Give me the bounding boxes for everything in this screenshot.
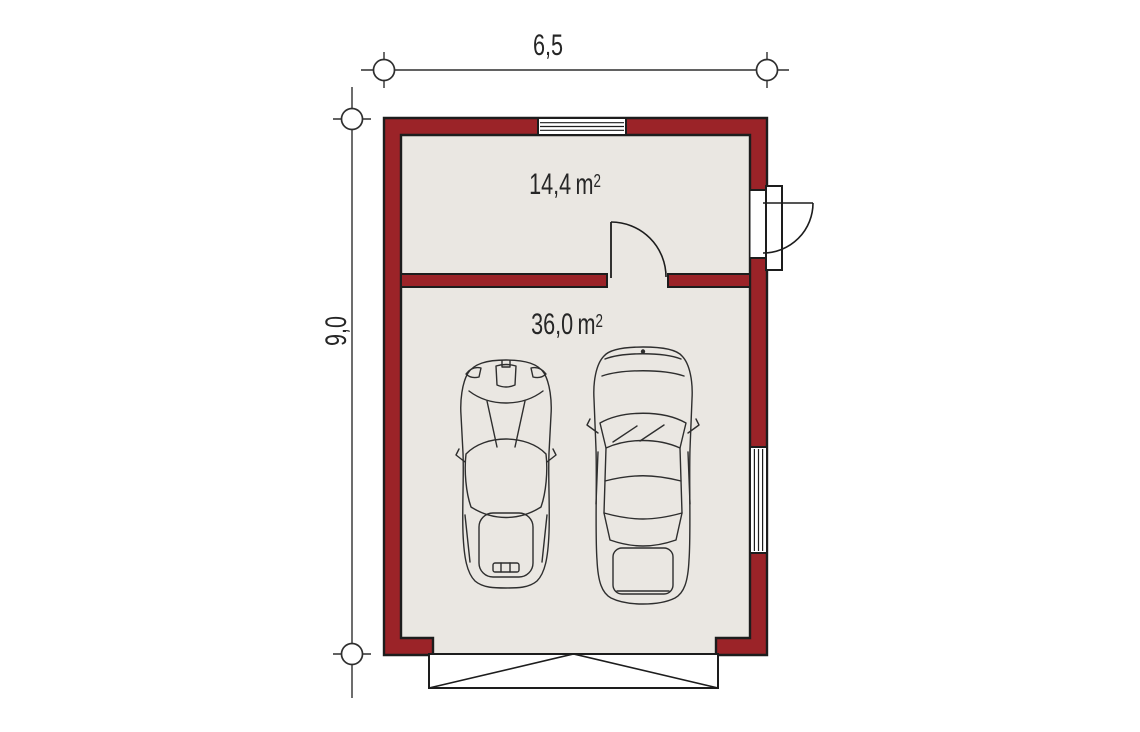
partition-wall-right — [668, 274, 750, 287]
floor-area — [399, 133, 752, 655]
dimension-height-label: 9,0 — [322, 310, 352, 352]
partition-wall-left — [401, 274, 607, 287]
dimension-line-width — [361, 52, 789, 88]
floor-plan-page: 6,5 9,0 14,4m2 36,0m2 — [0, 0, 1140, 732]
floor-plan-drawing — [0, 0, 1140, 732]
window-top-icon — [538, 118, 626, 135]
dimension-circle-marker-icon — [342, 109, 363, 130]
dimension-line-height — [333, 87, 371, 698]
exterior-door-swing-icon — [750, 186, 813, 270]
room-area-label-utility: 14,4m2 — [515, 170, 615, 200]
garage-door-panel-icon — [429, 654, 718, 688]
dimension-width-label: 6,5 — [527, 31, 569, 61]
window-right-icon — [750, 447, 767, 553]
room-area-label-garage: 36,0m2 — [517, 310, 617, 340]
dimension-circle-marker-icon — [757, 60, 778, 81]
dimension-circle-marker-icon — [342, 644, 363, 665]
dimension-circle-marker-icon — [374, 60, 395, 81]
